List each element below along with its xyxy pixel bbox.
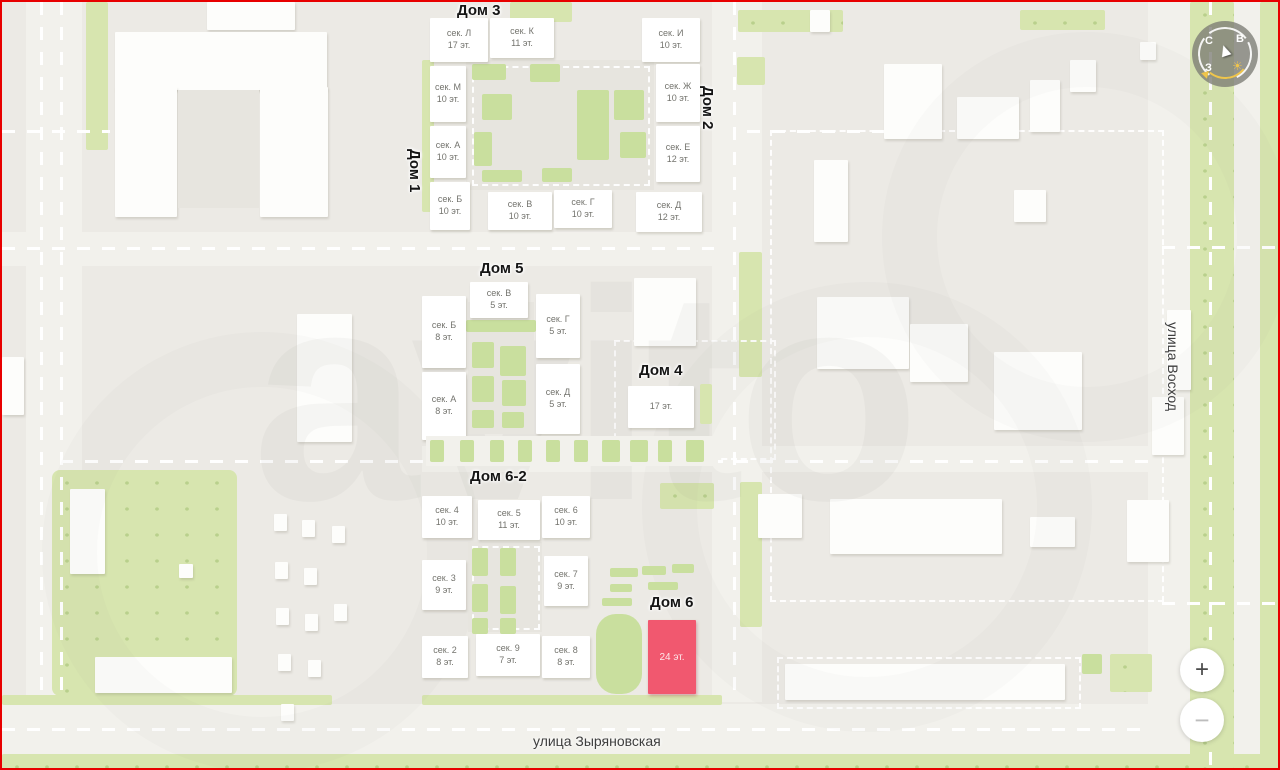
green-patch [518,440,532,462]
green-patch [620,132,646,158]
section-floors: 8 эт. [557,657,575,669]
section-floors: 10 эт. [667,93,690,105]
section-floors: 9 эт. [557,581,575,593]
green-patch [686,440,704,462]
green-patch [472,548,488,576]
section-floors: 8 эт. [436,657,454,669]
building [281,704,294,721]
building-dom6-2-sec-4[interactable]: сек. 4 10 эт. [422,496,472,538]
building [274,514,287,531]
building-dom3-sec-zh[interactable]: сек. Ж 10 эт. [656,64,700,122]
building [115,87,177,217]
green-patch [474,132,492,166]
green-patch [542,168,572,182]
section-name: сек. Д [657,200,682,212]
section-name: сек. Е [666,142,690,154]
green-patch [482,94,512,120]
section-floors: 11 эт. [511,38,533,50]
building [1127,500,1169,562]
green-verge-bottom [2,754,1280,770]
building-dom3-sec-g[interactable]: сек. Г 10 эт. [554,190,612,228]
building [1014,190,1046,222]
building [260,87,328,217]
green-patch [472,64,506,80]
section-name: сек. В [508,199,532,211]
road-marking [2,247,714,250]
building [334,604,347,621]
building [1070,60,1096,92]
building-dom6-2-sec-7[interactable]: сек. 7 9 эт. [544,556,588,606]
street-label-voskhod: улица Восход [1165,322,1181,411]
building-dom6-2-sec-3[interactable]: сек. 3 9 эт. [422,560,466,610]
building-dom6-highlighted[interactable]: 24 эт. [648,620,696,694]
building [994,352,1082,430]
building-dom4[interactable]: 17 эт. [628,386,694,428]
road-marking [2,728,1147,731]
road-marking [60,2,63,697]
building [634,278,696,346]
section-name: сек. 5 [497,508,520,520]
section-name: сек. Б [438,194,462,206]
section-name: сек. 9 [496,643,519,655]
green-strip [86,2,108,150]
green-patch [472,584,488,612]
building [207,2,295,30]
section-floors: 10 эт. [439,206,462,218]
green-patch [1110,654,1152,692]
section-floors: 10 эт. [660,40,683,52]
section-name: сек. И [659,28,684,40]
green-patch [614,90,644,120]
green-patch [502,380,526,406]
compass-north-label: С [1205,35,1213,47]
section-name: сек. Ж [665,81,692,93]
building [884,64,942,139]
label-dom-5: Дом 5 [480,260,523,277]
road-marking [1162,246,1280,249]
section-floors: 7 эт. [499,655,517,667]
building-dom3-sec-e[interactable]: сек. Е 12 эт. [656,126,700,182]
building [814,160,848,242]
label-dom-6: Дом 6 [650,594,693,611]
green-patch [648,582,678,590]
green-patch [472,342,494,368]
green-patch [500,618,516,634]
section-name: сек. 4 [435,505,458,517]
green-patch [466,320,536,332]
green-patch [500,346,526,376]
building-dom3-sec-d[interactable]: сек. Д 12 эт. [636,192,702,232]
green-patch [700,384,712,424]
section-name: сек. А [432,394,456,406]
building [95,657,232,693]
building-dom6-2-sec-2[interactable]: сек. 2 8 эт. [422,636,468,678]
label-dom-3: Дом 3 [457,2,500,19]
building-dom5-sec-a[interactable]: сек. А 8 эт. [422,372,466,440]
green-patch [574,440,588,462]
green-patch [530,64,560,82]
building-dom5-sec-v[interactable]: сек. В 5 эт. [470,282,528,318]
green-patch [472,618,488,634]
green-patch [672,564,694,573]
road-marking [40,2,43,697]
green-verge [422,695,722,705]
section-floors: 10 эт. [436,517,459,529]
section-floors: 10 эт. [555,517,578,529]
green-patch [737,57,765,85]
section-floors: 8 эт. [435,406,453,418]
building [957,97,1019,139]
green-patch [630,440,648,462]
site-plan-map[interactable]: avito сек. Л 17 эт. сек. К 11 эт. сек. И… [0,0,1280,770]
building [179,564,193,578]
building [758,494,802,538]
building-dom5-sec-g[interactable]: сек. Г 5 эт. [536,294,580,358]
green-patch [577,90,609,160]
building [817,297,909,369]
section-floors: 17 эт. [448,40,471,52]
sun-icon: ☀ [1232,59,1243,73]
label-dom-6-2: Дом 6-2 [470,468,527,485]
green-patch [546,440,560,462]
section-name: сек. Д [546,387,571,399]
road-marking [2,130,110,133]
building [810,10,830,32]
label-dom-4: Дом 4 [639,362,682,379]
section-name: сек. К [510,26,534,38]
section-floors: 12 эт. [667,154,690,166]
green-patch [602,440,620,462]
compass-widget[interactable]: С В З ☀ [1192,21,1258,87]
section-name: сек. Г [571,197,594,209]
road-marking [1162,602,1280,605]
section-name: сек. Г [546,314,569,326]
green-patch [490,440,504,462]
green-patch [500,586,516,614]
building-dom5-sec-d[interactable]: сек. Д 5 эт. [536,364,580,434]
compass-east-label: В [1236,33,1244,45]
building [115,32,327,90]
green-patch [460,440,474,462]
green-patch [500,548,516,576]
building-dom3-sec-k[interactable]: сек. К 11 эт. [490,18,554,58]
green-patch [610,568,638,577]
green-patch [610,584,632,592]
compass-west-label: З [1205,62,1212,74]
section-name: сек. 6 [554,505,577,517]
green-patch [602,598,632,606]
green-patch [642,566,666,575]
building [830,499,1002,554]
building [70,489,105,574]
green-patch [1082,654,1102,674]
green-patch [430,440,444,462]
building-dom3-sec-i[interactable]: сек. И 10 эт. [642,18,700,62]
building [275,562,288,579]
zoom-out-button[interactable]: − [1180,698,1224,742]
building [785,664,1065,700]
section-name: сек. 3 [432,573,455,585]
road-voskhod-east-lane [1234,2,1260,770]
building [910,324,968,382]
section-floors: 11 эт. [498,520,520,532]
section-floors: 9 эт. [435,585,453,597]
green-strip [1260,2,1280,770]
section-name: сек. Б [432,320,456,332]
building [304,568,317,585]
street-label-zyryanovskaya: улица Зыряновская [533,733,661,749]
building-dom5-sec-b[interactable]: сек. Б 8 эт. [422,296,466,368]
label-dom-1: Дом 1 [406,149,423,192]
building [332,526,345,543]
building [305,614,318,631]
building [1140,42,1156,60]
building [308,660,321,677]
building [2,357,24,415]
section-floors: 12 эт. [658,212,681,224]
section-name: сек. В [487,288,511,300]
building-dom3-sec-m[interactable]: сек. М 10 эт. [430,66,466,122]
section-name: сек. 2 [433,645,456,657]
green-strip [1020,10,1105,30]
section-name: сек. 8 [554,645,577,657]
building [1030,517,1075,547]
building [297,314,352,442]
section-floors: 10 эт. [509,211,532,223]
section-floors: 8 эт. [435,332,453,344]
section-floors: 5 эт. [549,399,567,411]
building-dom6-2-sec-6[interactable]: сек. 6 10 эт. [542,496,590,538]
section-name: сек. А [436,140,460,152]
building [1030,80,1060,132]
building [276,608,289,625]
section-floors: 10 эт. [572,209,595,221]
section-name: сек. Л [447,28,471,40]
section-floors: 17 эт. [650,401,673,413]
green-patch [660,483,714,509]
section-floors: 5 эт. [490,300,508,312]
section-floors: 10 эт. [437,152,460,164]
building-dom3-sec-l[interactable]: сек. Л 17 эт. [430,18,488,62]
building [302,520,315,537]
building-dom3-sec-v[interactable]: сек. В 10 эт. [488,192,552,230]
zoom-in-button[interactable]: + [1180,648,1224,692]
building-dom3-sec-b[interactable]: сек. Б 10 эт. [430,182,470,230]
green-patch [472,376,494,402]
green-patch [658,440,672,462]
label-dom-2: Дом 2 [699,86,716,129]
building-dom6-2-sec-5[interactable]: сек. 5 11 эт. [478,500,540,540]
building [278,654,291,671]
section-name: сек. М [435,82,461,94]
section-name: сек. 7 [554,569,577,581]
building-dom3-sec-a[interactable]: сек. А 10 эт. [430,126,466,178]
green-patch [596,614,642,694]
courtyard [178,90,259,208]
section-floors: 10 эт. [437,94,460,106]
section-floors: 24 эт. [659,651,684,664]
green-patch [482,170,522,182]
section-floors: 5 эт. [549,326,567,338]
green-patch [472,410,494,428]
building-dom6-2-sec-8[interactable]: сек. 8 8 эт. [542,636,590,678]
building-dom6-2-sec-9[interactable]: сек. 9 7 эт. [476,634,540,676]
green-patch [502,412,524,428]
